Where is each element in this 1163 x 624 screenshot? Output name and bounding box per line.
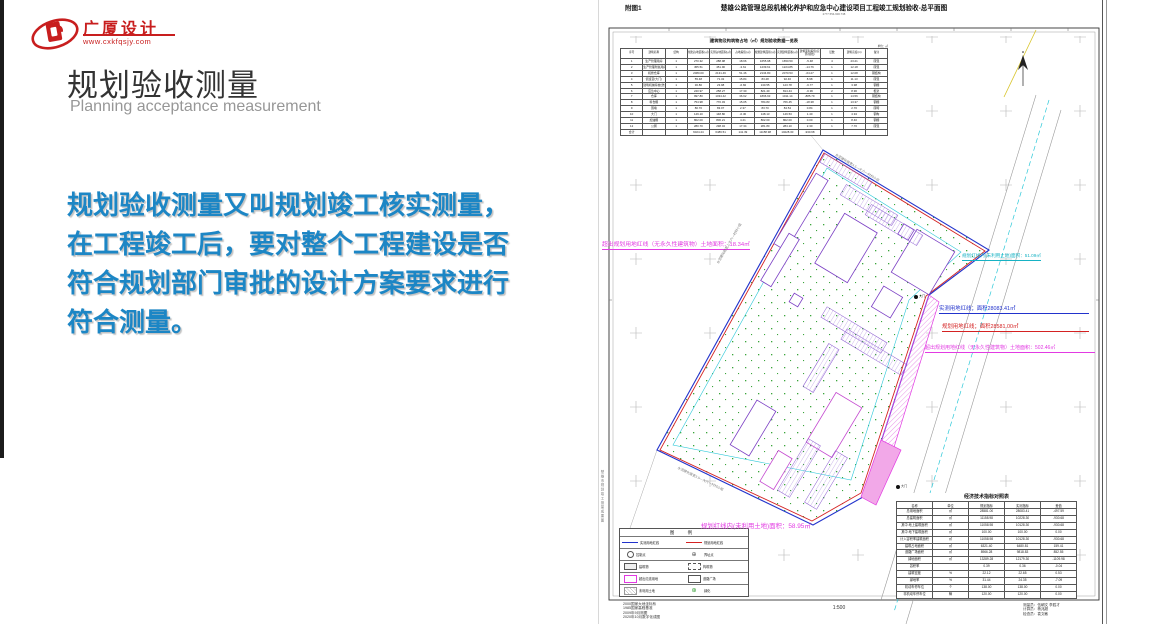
table-header-row: 名称单位规划指标实测指标差值 — [897, 502, 1077, 509]
circle-icon — [627, 551, 634, 558]
intro-paragraph: 规划验收测量又叫规划竣工核实测量， 在工程竣工后，要对整个工程建设是否 符合规划… — [67, 186, 577, 342]
south-gate-dot — [896, 485, 900, 489]
drawing-sheet: 附图1 楚雄公路管理总段机械化养护和应急中心建设项目工程竣工规划验收-总平面图 … — [598, 0, 1108, 624]
table-row: 合计6024.446486.51141.3911158.9810228.30-9… — [621, 129, 888, 135]
legend: 图 例 实测用地红线规划用地红线控制点⊕界址点建筑物构筑物超出红线用地道路广场未… — [619, 528, 749, 597]
annotation-planned-red-line: 规划用地红线；面积28581.00㎡ — [942, 322, 1089, 332]
legend-item: 未利用土地 — [620, 584, 684, 596]
logo-swoosh-icon — [30, 13, 82, 55]
table-row: 绿地面积㎡13289.2812179.30-1109.98 — [897, 557, 1077, 564]
legend-grid: 实测用地红线规划用地红线控制点⊕界址点建筑物构筑物超出红线用地道路广场未利用土地… — [620, 536, 748, 596]
legend-item: 建筑物 — [620, 560, 684, 572]
table-row: 绿地率%31.4424.35-7.09 — [897, 578, 1077, 585]
line-blue-icon — [622, 542, 638, 543]
side-vertical-note: 楚雄市规划竣工测量成果图 — [600, 470, 605, 523]
legend-label: 道路广场 — [703, 576, 716, 581]
line-red-icon — [686, 542, 702, 543]
logo-url: www.cxkfqsjy.com — [83, 37, 151, 46]
legend-label: 界址点 — [704, 552, 714, 557]
table-row: 总建筑面积㎡11158.9810228.30-930.68 — [897, 515, 1077, 522]
annotation-excess-land-right: 超出规划用地红线（无永久性建筑物）土地面积：502.46㎡ — [925, 344, 1095, 353]
legend-label: 实测用地红线 — [640, 540, 659, 545]
tree-icon: ⊛ — [686, 588, 702, 594]
legend-item: 控制点 — [620, 548, 684, 560]
annotation-measured-red-line: 实测用地红线；面积28083.41㎡ — [939, 304, 1089, 314]
legend-label: 超出红线用地 — [639, 576, 658, 581]
left-edge-strip — [0, 0, 4, 458]
slide: 广厦设计 www.cxkfqsjy.com 规划验收测量 Planning ac… — [0, 0, 1163, 624]
legend-label: 构筑物 — [703, 564, 713, 569]
econ-table-title: 经济技术指标对照表 — [896, 493, 1077, 500]
table-row: 计入容积率建筑面积㎡11058.9810128.30-930.68 — [897, 536, 1077, 543]
annotation-unused-land-bottom: 规划红线内(未利用土地)面积：58.95㎡ — [701, 521, 811, 530]
legend-item: 构筑物 — [684, 560, 748, 572]
rect-dashed-icon — [688, 563, 701, 570]
footer-survey-basis: 2000国家大地坐标系1985国家高程基准2009年9月测图2020年10月数字… — [623, 602, 660, 620]
page-edge-line-1 — [1102, 0, 1103, 624]
econ-table-block: 经济技术指标对照表 名称单位规划指标实测指标差值总用地面积㎡28581.0028… — [896, 493, 1077, 599]
company-logo: 广厦设计 www.cxkfqsjy.com — [30, 11, 190, 57]
annotation-unused-land-right: 规划红线内(未利用土地)面积：51.09㎡ — [962, 253, 1041, 261]
rect-gray-icon — [624, 563, 637, 570]
buildings-table: 序号建筑名称结构规划占地面积(㎡)实测占地面积(㎡)占地差值(㎡)规划建筑面积(… — [620, 48, 888, 136]
legend-item: ⊕界址点 — [684, 548, 748, 560]
legend-item: 超出红线用地 — [620, 572, 684, 584]
hatch-icon — [624, 587, 637, 595]
circle-cross-icon: ⊕ — [686, 552, 702, 558]
legend-label: 建筑物 — [639, 564, 649, 569]
table-row: 建筑占地面积㎡6321.406480.81159.41 — [897, 543, 1077, 550]
econ-table: 名称单位规划指标实测指标差值总用地面积㎡28581.0028083.41-497… — [896, 501, 1077, 599]
table-row: 非机动车停车位辆120.00120.000.00 — [897, 591, 1077, 598]
legend-item: ⊛绿化 — [684, 584, 748, 596]
table-row: 其中 地下建筑面积㎡100.00100.000.00 — [897, 529, 1077, 536]
legend-label: 控制点 — [636, 552, 646, 557]
buildings-table-block: 建筑物及构筑物占地（㎡）规划验收数据一览表 单位：㎡ 序号建筑名称结构规划占地面… — [620, 38, 888, 136]
table-row: 总用地面积㎡28581.0028083.41-497.59 — [897, 509, 1077, 516]
rect-magenta-icon — [624, 575, 637, 583]
footer-line: 2020年10月数字化成图 — [623, 615, 660, 619]
table-row: 建筑密度%22.1222.650.53 — [897, 571, 1077, 578]
table-row: 机动车停车位个138.00138.000.00 — [897, 584, 1077, 591]
rect-label-icon — [688, 575, 701, 583]
page-subtitle: Planning acceptance measurement — [70, 98, 321, 116]
table-header-row: 序号建筑名称结构规划占地面积(㎡)实测占地面积(㎡)占地差值(㎡)规划建筑面积(… — [621, 49, 888, 59]
legend-label: 规划用地红线 — [704, 540, 723, 545]
table-row: 容积率0.390.36-0.04 — [897, 564, 1077, 571]
legend-label: 未利用土地 — [639, 588, 655, 593]
south-gate-label: 大门 — [901, 484, 907, 488]
table-row: 道路广场面积㎡8966.289818.83852.55 — [897, 550, 1077, 557]
legend-title: 图 例 — [620, 529, 748, 536]
footer-scale: 1:500 — [809, 605, 869, 611]
footer-line: 检查员：袁文敏 — [1023, 612, 1060, 616]
east-gate-label: 大门 — [919, 294, 925, 298]
legend-item: 道路广场 — [684, 572, 748, 584]
footer-personnel: 测量员：伍朝文 李胜才计算员：杨兆超检查员：袁文敏 — [1023, 603, 1060, 616]
east-gate-dot — [914, 295, 918, 299]
legend-item: 规划用地红线 — [684, 536, 748, 548]
legend-label: 绿化 — [704, 588, 710, 593]
table-row: 其中 地上建筑面积㎡11058.9810128.30-930.68 — [897, 522, 1077, 529]
logo-divider — [83, 34, 175, 36]
page-edge-line-2 — [1106, 0, 1107, 624]
legend-item: 实测用地红线 — [620, 536, 684, 548]
